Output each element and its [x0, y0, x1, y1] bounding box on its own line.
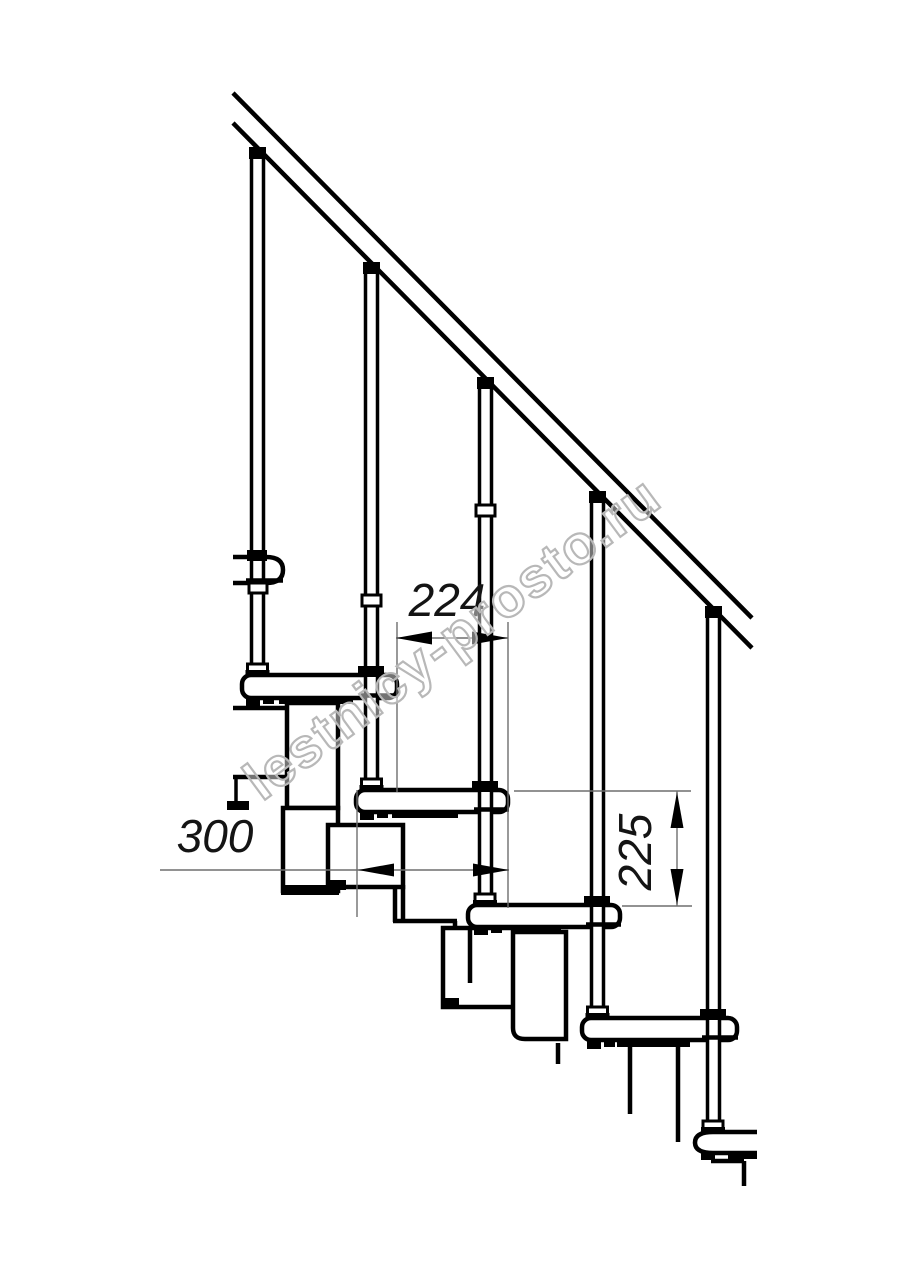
tread-4-bolt	[491, 926, 502, 933]
tread-5-bolt	[587, 1040, 601, 1049]
tread-5-module-plate	[617, 1040, 690, 1047]
tread-6-module-plate	[728, 1151, 757, 1159]
tread-1-lower-collar	[249, 583, 267, 593]
module-3-corner-clamp	[328, 880, 346, 890]
tread-4-baluster-clamp	[584, 896, 610, 907]
dimension-label-225: 225	[609, 813, 661, 891]
tread-2-bolt	[246, 697, 260, 706]
drawing-canvas: 224 300 225 lestnicy-prosto.ru	[0, 0, 914, 1280]
baluster-3-joint-collar	[476, 505, 495, 516]
module-4-corner-clamp	[442, 998, 459, 1009]
module-5	[513, 932, 566, 1039]
tread-6-bolt	[701, 1151, 715, 1160]
tread-5-baluster-clamp	[700, 1009, 726, 1020]
tread-3-baluster-clamp	[472, 781, 498, 792]
dimension-label-300: 300	[177, 810, 254, 862]
tread-3-module-plate	[392, 811, 458, 818]
tread-4-module-plate	[516, 926, 561, 933]
module-3	[328, 825, 403, 887]
tread-3-bolt	[360, 811, 374, 820]
arrowhead-up	[671, 792, 684, 828]
tread-4-bolt	[474, 926, 488, 935]
tread-5-bolt	[604, 1040, 615, 1047]
module-4	[443, 928, 518, 1007]
tread-3-bolt	[377, 811, 388, 818]
staircase-drawing: 224 300 225 lestnicy-prosto.ru	[0, 0, 914, 1280]
tread-2-bolt	[263, 697, 274, 704]
baluster-2-joint-collar	[362, 595, 381, 606]
upper-module-foot	[227, 801, 249, 810]
tread-1-rail-clamp	[247, 550, 267, 561]
tread-6	[695, 1132, 757, 1153]
arrowhead-down	[671, 869, 684, 905]
